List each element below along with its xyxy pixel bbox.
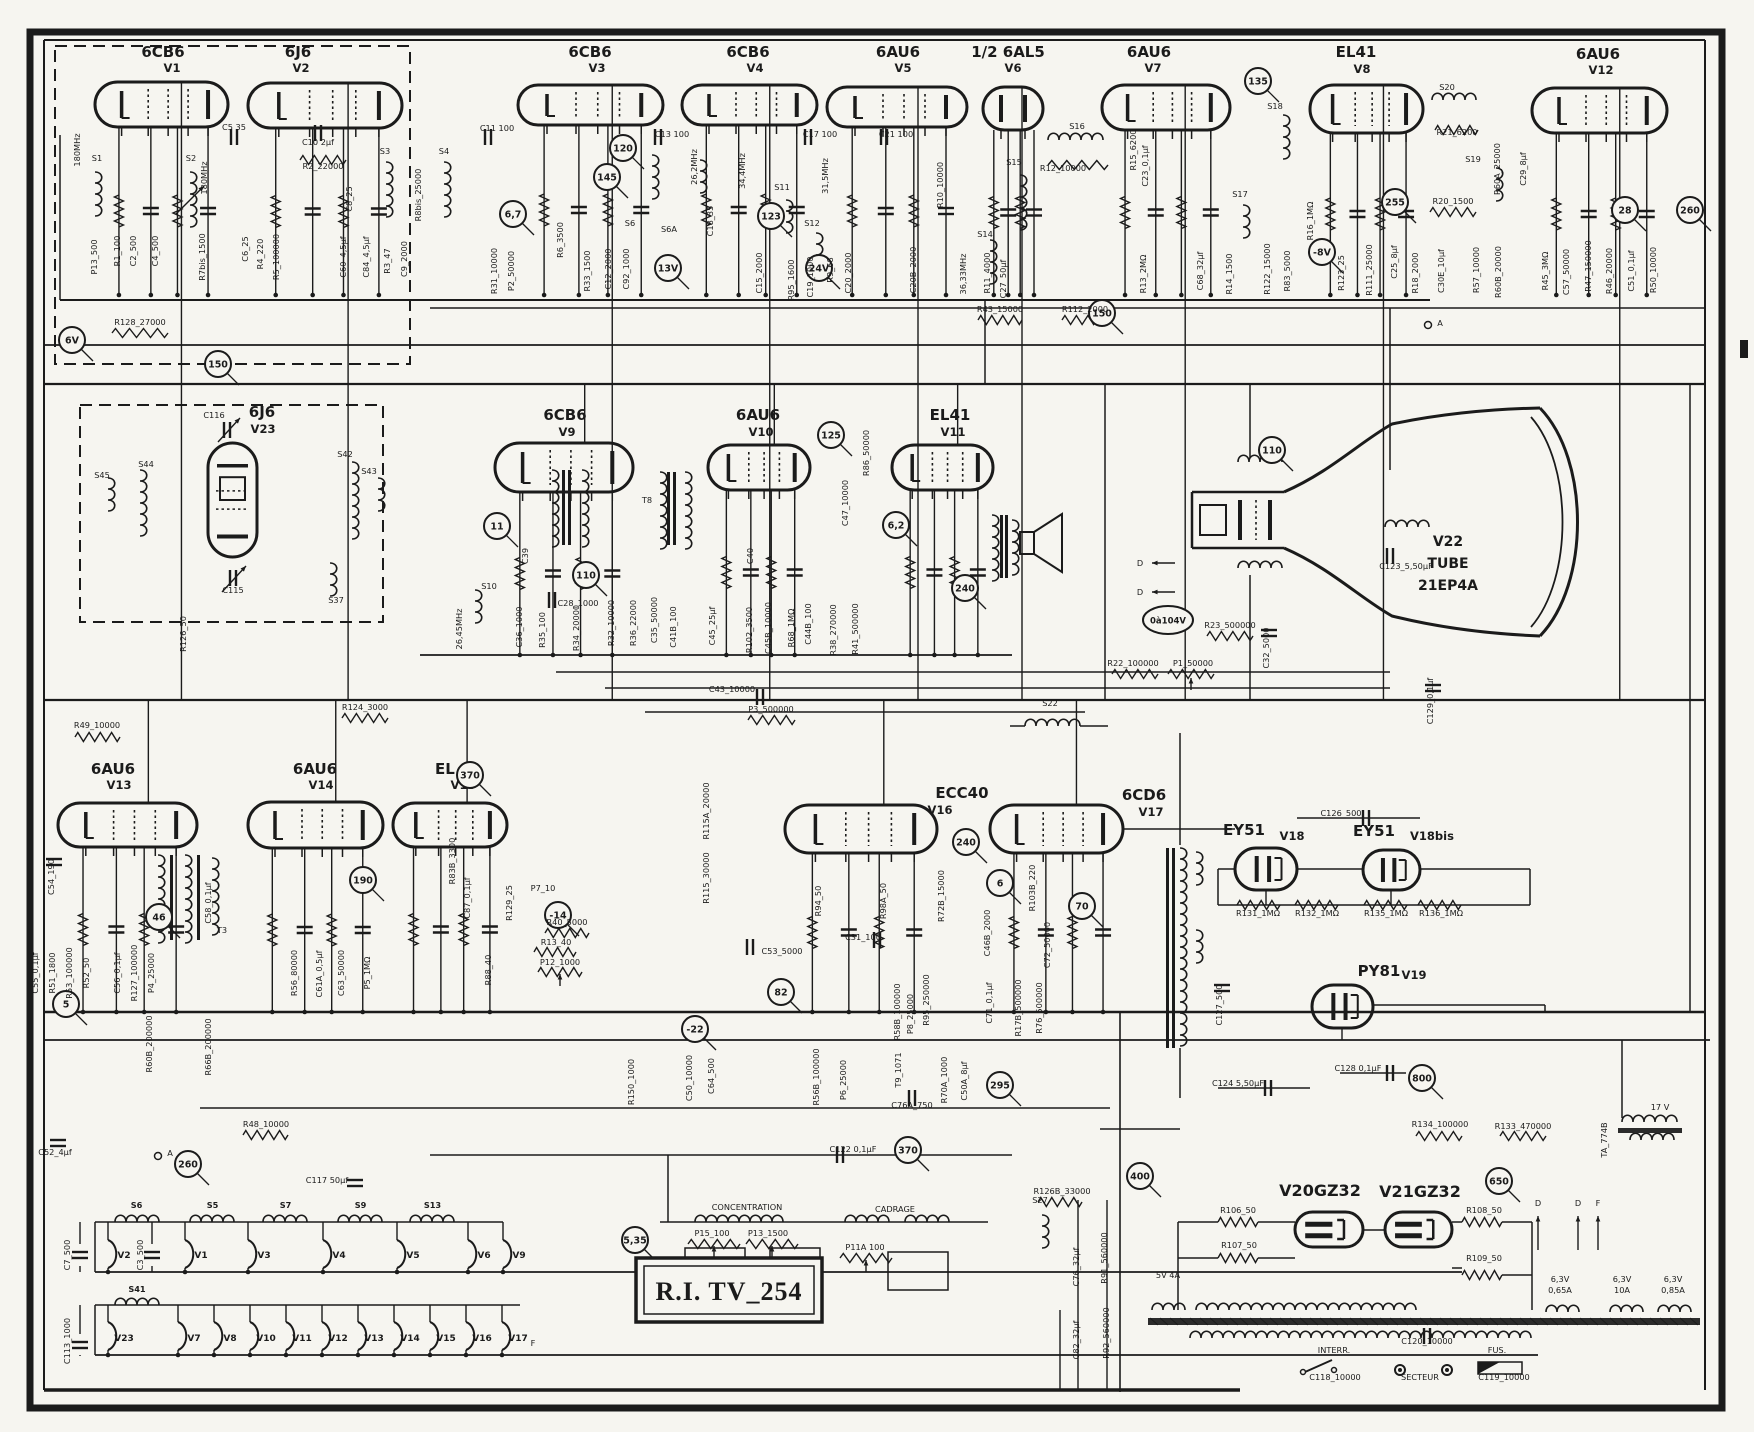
component-label: FUS. — [1488, 1345, 1507, 1355]
component-label: V4 — [332, 1251, 345, 1261]
component-label: C27_50µf — [998, 259, 1008, 299]
component-label: 150 — [208, 360, 228, 371]
component-label: R41_500000 — [850, 603, 860, 654]
component-label: 370 — [898, 1146, 918, 1157]
component-label: R126_50 — [178, 616, 188, 652]
component-label: R122_15000 — [1262, 243, 1272, 294]
tube-V19 — [1312, 985, 1373, 1028]
component-label: R103B_220 — [1027, 865, 1037, 912]
component-label: C18_35 — [705, 206, 715, 237]
component-label: S37 — [328, 595, 344, 605]
component-label: 6J6 — [249, 403, 275, 421]
component-label: R92_560000 — [1101, 1307, 1111, 1358]
component-label: F — [531, 1338, 536, 1348]
component-label: 11 — [490, 522, 503, 533]
component-label: R43_15000 — [977, 304, 1023, 314]
component-label: V4 — [747, 61, 764, 75]
test-point-value — [987, 870, 1021, 904]
component-label: 26,2MHz — [689, 149, 699, 185]
component-label: 6AU6 — [1576, 45, 1620, 63]
component-label: R98A_50 — [878, 883, 888, 919]
component-label: 6CB6 — [141, 43, 184, 61]
component-label: 6V — [65, 336, 80, 347]
component-label: C5 35 — [222, 122, 246, 132]
component-label: R5_100000 — [271, 234, 281, 280]
component-label: V5 — [895, 61, 912, 75]
component-label: S2 — [186, 153, 196, 163]
component-label: C118_10000 — [1309, 1372, 1360, 1382]
component-label: 400 — [1130, 1172, 1150, 1183]
component-label: 13V — [658, 264, 679, 275]
component-label: V13 — [107, 778, 132, 792]
schematic-canvas: 6CB6V16J6V26CB6V36CB6V46AU6V51/2 6AL5V66… — [0, 0, 1754, 1432]
component-label: R16_1MΩ — [1305, 202, 1315, 241]
component-label: R2_22000 — [302, 161, 343, 171]
component-label: C92_1000 — [621, 248, 631, 289]
component-label: 6CB6 — [726, 43, 769, 61]
component-label: T8 — [641, 495, 652, 505]
component-label: R8bis_25000 — [413, 169, 423, 222]
component-label: C51_0,1µf — [1626, 249, 1636, 291]
component-label: V13 — [364, 1334, 384, 1344]
component-label: V5 — [406, 1251, 419, 1261]
component-label: 145 — [597, 173, 617, 184]
component-label: V19 — [1402, 968, 1427, 982]
component-label: S9 — [355, 1200, 367, 1210]
component-label: C13 100 — [655, 129, 689, 139]
component-label: C76A_750 — [891, 1100, 932, 1110]
component-label: R53_100000 — [64, 947, 74, 998]
component-label: C115 — [222, 585, 243, 595]
component-label: C8_25 — [344, 186, 354, 211]
component-label: ECC40 — [935, 784, 988, 802]
component-label: 110 — [576, 571, 596, 582]
component-label: V23 — [251, 422, 276, 436]
component-label: EY51 — [1223, 821, 1265, 839]
component-label: C116 — [203, 410, 224, 420]
component-label: R129_25 — [504, 885, 514, 921]
component-label: 10A — [1614, 1285, 1630, 1295]
component-label: S15 — [1006, 157, 1022, 167]
component-label: V20GZ32 — [1279, 1181, 1361, 1200]
component-label: S20 — [1439, 82, 1455, 92]
component-label: P3_500000 — [748, 704, 794, 714]
component-label: R150_1000 — [626, 1059, 636, 1105]
component-label: R49_10000 — [74, 720, 120, 730]
component-label: 6AU6 — [293, 760, 337, 778]
component-label: R66B_200000 — [203, 1018, 213, 1075]
component-label: C47_10000 — [840, 480, 850, 526]
component-label: C55_0,1µf — [30, 951, 40, 993]
component-label: C122 0,1µF — [830, 1144, 877, 1154]
component-label: S43 — [361, 466, 377, 476]
component-label: 180MHz — [199, 161, 209, 194]
component-label: P11A 100 — [845, 1242, 884, 1252]
component-label: V7 — [1145, 61, 1162, 75]
component-label: S44 — [138, 459, 154, 469]
component-label: EL41 — [930, 406, 971, 424]
component-label: C35_50000 — [649, 597, 659, 643]
component-label: 260 — [178, 1160, 198, 1171]
component-label: C124 5,50µF — [1212, 1078, 1264, 1088]
component-label: 26,45MHz — [454, 609, 464, 650]
component-label: C25_8µf — [1389, 244, 1399, 279]
component-label: C45B_10000 — [763, 602, 773, 654]
component-label: C12_2000 — [603, 248, 613, 289]
component-label: C39 — [520, 548, 530, 564]
component-label: R17B_500000 — [1013, 979, 1023, 1036]
component-label: V17 — [508, 1334, 528, 1344]
component-label: S11 — [774, 182, 790, 192]
component-label: C53_5000 — [761, 946, 802, 956]
component-label: C119_10000 — [1478, 1372, 1529, 1382]
component-label: P6_25000 — [838, 1060, 848, 1100]
component-label: V12 — [328, 1334, 348, 1344]
component-label: 255 — [1385, 198, 1405, 209]
component-label: 6,3V — [1551, 1274, 1570, 1284]
component-label: P12_1000 — [540, 957, 580, 967]
component-label: R10_10000 — [935, 162, 945, 208]
component-label: R7bis_1500 — [197, 233, 207, 281]
component-label: C3_500 — [135, 1240, 145, 1271]
component-label: R115A_20000 — [701, 782, 711, 839]
component-label: 28 — [1618, 206, 1632, 217]
component-label: R102_3500 — [744, 607, 754, 653]
component-label: V6 — [477, 1251, 490, 1261]
component-label: R127_100000 — [129, 945, 139, 1002]
component-label: C41B_100 — [668, 606, 678, 647]
component-label: C123_5,50µF — [1379, 561, 1433, 571]
component-label: P5_1MΩ — [362, 957, 372, 990]
component-label: C60_4,5µf — [338, 235, 348, 277]
component-label: R91_560000 — [1099, 1232, 1109, 1283]
component-label: R135_1MΩ — [1364, 908, 1408, 918]
component-label: V11 — [292, 1334, 312, 1344]
component-label: R60B_200000 — [144, 1015, 154, 1072]
component-label: C9_2000 — [399, 241, 409, 277]
component-label: R50_10000 — [1648, 247, 1658, 293]
component-label: V3 — [589, 61, 606, 75]
component-label: C50A_8µf — [959, 1060, 969, 1100]
component-label: 6CB6 — [543, 406, 586, 424]
component-label: 6AU6 — [1127, 43, 1171, 61]
component-label: R136_1MΩ — [1419, 908, 1463, 918]
component-label: V21GZ32 — [1379, 1182, 1461, 1201]
component-label: 120 — [613, 144, 633, 155]
component-label: V2 — [293, 61, 310, 75]
component-label: T9_1071 — [893, 1052, 903, 1088]
component-label: 17 V — [1651, 1102, 1670, 1112]
component-label: R36_22000 — [628, 600, 638, 646]
component-label: C2_500 — [128, 236, 138, 267]
component-label: C32_5000 — [1261, 627, 1271, 668]
component-label: C68_32µf — [1195, 251, 1205, 291]
component-label: 70 — [1075, 902, 1089, 913]
component-label: 123 — [761, 212, 781, 223]
component-label: R70A_1000 — [939, 1057, 949, 1104]
component-label: C56_0,1µf — [112, 951, 122, 993]
component-label: V14 — [309, 778, 334, 792]
component-label: -22 — [686, 1025, 703, 1036]
component-label: S17 — [1232, 189, 1248, 199]
component-label: EL41 — [1336, 43, 1377, 61]
component-label: C128 0,1µF — [1335, 1063, 1382, 1073]
component-label: P15_100 — [694, 1228, 729, 1238]
component-label: P7_10 — [531, 883, 556, 893]
component-label: 36,33MHz — [958, 254, 968, 295]
component-label: C43_10000 — [709, 684, 755, 694]
component-label: P2_50000 — [506, 251, 516, 291]
component-label: 5,35 — [623, 1236, 646, 1247]
component-label: C72_50000 — [1042, 922, 1052, 968]
component-label: C129_0,1µf — [1425, 677, 1435, 725]
tube-V18bis — [1363, 850, 1420, 890]
tube-V23 — [208, 443, 257, 557]
component-label: 190 — [353, 876, 373, 887]
component-label: C40 — [745, 548, 755, 564]
component-label: 6CD6 — [1122, 786, 1166, 804]
component-label: 21EP4A — [1418, 578, 1478, 594]
component-label: C52_4µf — [38, 1147, 73, 1157]
component-label: -8V — [1313, 248, 1332, 259]
component-label: S45 — [94, 470, 110, 480]
component-label: R60A_25000 — [1492, 143, 1502, 195]
component-label: R47_150000 — [1583, 240, 1593, 291]
component-label: R14_1500 — [1224, 253, 1234, 294]
component-label: R123_25 — [1336, 255, 1346, 291]
component-label: V17 — [1139, 805, 1164, 819]
component-label: 5V 4A — [1156, 1270, 1181, 1280]
component-label: C127_500 — [1214, 984, 1224, 1025]
component-label: R18_2000 — [1410, 252, 1420, 293]
component-label: C120_10000 — [1401, 1336, 1452, 1346]
component-label: 0,65A — [1548, 1285, 1572, 1295]
component-label: S19 — [1465, 154, 1481, 164]
component-label: SECTEUR — [1401, 1372, 1439, 1382]
component-label: 31,5MHz — [820, 158, 830, 194]
component-label: 6AU6 — [91, 760, 135, 778]
component-label: 240 — [955, 584, 975, 595]
component-label: A — [1437, 318, 1443, 328]
component-label: R107_50 — [1221, 1240, 1257, 1250]
component-label: 6AU6 — [736, 406, 780, 424]
component-label: R94_50 — [813, 886, 823, 917]
component-label: R88_40 — [483, 955, 493, 986]
component-label: R22_100000 — [1107, 658, 1158, 668]
component-label: R56B_100000 — [811, 1048, 821, 1105]
component-label: C4_500 — [150, 236, 160, 267]
component-label: R11_4000 — [982, 252, 992, 293]
tube-V21 — [1385, 1212, 1452, 1247]
component-label: S22 — [1042, 698, 1058, 708]
component-label: V8 — [223, 1334, 236, 1344]
component-label: V9 — [559, 425, 576, 439]
component-label: S6 — [625, 218, 635, 228]
component-label: C17 100 — [803, 129, 837, 139]
component-label: C84_4,5µf — [361, 235, 371, 277]
component-label: C20_2000 — [843, 252, 853, 293]
component-label: R34_20000 — [571, 605, 581, 651]
component-label: V22 — [1433, 534, 1463, 550]
component-label: 6CB6 — [568, 43, 611, 61]
component-label: R83_5000 — [1282, 250, 1292, 291]
component-label: S1 — [92, 153, 102, 163]
component-label: INTERR. — [1318, 1345, 1350, 1355]
component-label: R33_1500 — [582, 250, 592, 291]
component-label: 295 — [990, 1081, 1010, 1092]
component-label: C44B_100 — [803, 603, 813, 644]
component-label: C61A_0,5µf — [314, 949, 324, 997]
component-label: PY81 — [1358, 962, 1401, 980]
component-label: 6J6 — [285, 43, 311, 61]
component-label: D — [1575, 1198, 1581, 1208]
component-label: S10 — [481, 581, 497, 591]
component-label: 240 — [956, 838, 976, 849]
component-label: 0,85A — [1661, 1285, 1685, 1295]
component-label: R6_3500 — [555, 222, 565, 258]
component-label: R133_470000 — [1495, 1121, 1552, 1131]
component-label: S7 — [280, 1200, 292, 1210]
component-label: V18 — [1280, 829, 1305, 843]
component-label: V1 — [164, 61, 181, 75]
component-label: S27 — [1032, 1195, 1048, 1205]
component-label: C19_1000 — [805, 256, 815, 297]
component-label: V2 — [117, 1251, 130, 1261]
component-label: R20_1500 — [1432, 196, 1473, 206]
component-label: R4_220 — [255, 239, 265, 270]
component-label: V10 — [256, 1334, 276, 1344]
component-label: CONCENTRATION — [712, 1202, 783, 1212]
component-label: R46_20000 — [1604, 248, 1614, 294]
component-label: P8_25000 — [905, 994, 915, 1034]
component-label: R68_1MΩ — [786, 609, 796, 648]
component-label: R95_1600 — [786, 259, 796, 300]
component-label: R108_50 — [1466, 1205, 1502, 1215]
component-label: R56_80000 — [289, 950, 299, 996]
component-label: R35_100 — [537, 612, 547, 648]
component-label: R12_10000 — [1040, 163, 1086, 173]
component-label: V16 — [472, 1334, 492, 1344]
component-label: R134_100000 — [1412, 1119, 1469, 1129]
component-label: 5 — [63, 1000, 70, 1011]
component-label: C11 100 — [480, 123, 514, 133]
component-label: V6 — [1005, 61, 1022, 75]
component-label: V16 — [928, 803, 953, 817]
component-label: C7_500 — [62, 1240, 72, 1271]
component-label: P13_500 — [89, 239, 99, 274]
component-label: R95_250000 — [921, 974, 931, 1025]
tube-V18 — [1235, 848, 1297, 890]
component-label: C82_32µf — [1071, 1320, 1081, 1360]
component-label: R48_10000 — [243, 1119, 289, 1129]
component-label: R124_3000 — [342, 702, 388, 712]
component-label: C50_10000 — [684, 1055, 694, 1101]
component-label: C31_100 — [845, 932, 881, 942]
component-label: S18 — [1267, 101, 1283, 111]
component-label: R109_50 — [1466, 1253, 1502, 1263]
component-label: V1 — [194, 1251, 207, 1261]
component-label: C6_25 — [240, 236, 250, 261]
component-label: C113_1000 — [62, 1318, 72, 1364]
component-label: V11 — [941, 425, 966, 439]
component-label: S3 — [380, 146, 390, 156]
component-label: R3_47 — [382, 248, 392, 273]
component-label: 6,3V — [1613, 1274, 1632, 1284]
component-label: R72B_15000 — [936, 870, 946, 922]
component-label: TUBE — [1427, 556, 1468, 572]
component-label: R13_2MΩ — [1138, 255, 1148, 294]
component-label: R9_68 — [825, 257, 835, 282]
component-label: R40_5000 — [546, 917, 587, 927]
component-label: S6 — [131, 1200, 143, 1210]
component-label: V14 — [400, 1334, 420, 1344]
component-label: R57_10000 — [1471, 247, 1481, 293]
component-label: 6AU6 — [876, 43, 920, 61]
component-label: C63_50000 — [336, 950, 346, 996]
component-label: R58B_100000 — [892, 983, 902, 1040]
component-label: C29_8µf — [1518, 151, 1528, 186]
component-label: V15 — [436, 1334, 456, 1344]
component-label: C117 50µf — [306, 1175, 350, 1185]
component-label: 135 — [1248, 77, 1268, 88]
component-label: R60B_20000 — [1493, 246, 1503, 298]
component-label: C15_2000 — [754, 252, 764, 293]
component-label: V8 — [1354, 62, 1371, 76]
component-label: 34,4MHz — [737, 153, 747, 189]
component-label: C36_1000 — [514, 606, 524, 647]
component-label: C58_0,1µf — [203, 881, 213, 923]
component-label: 125 — [821, 431, 841, 442]
component-label: C87_0,1µf — [462, 876, 472, 918]
component-label: R52_50 — [81, 958, 91, 989]
component-label: C76_32µf — [1071, 1247, 1081, 1287]
component-label: C20B_2000 — [908, 247, 918, 294]
component-label: C57_50000 — [1561, 249, 1571, 295]
component-label: 110 — [1262, 446, 1282, 457]
component-label: V7 — [187, 1334, 200, 1344]
component-label: T3 — [216, 925, 227, 935]
component-label: R38_270000 — [828, 604, 838, 655]
component-label: R115_30000 — [701, 852, 711, 903]
component-label: C71_0,1µf — [984, 981, 994, 1023]
component-label: R45_3MΩ — [1540, 252, 1550, 291]
component-label: R21_6200 — [1436, 127, 1477, 137]
component-label: R1_100 — [112, 236, 122, 267]
component-label: V9 — [512, 1251, 525, 1261]
component-label: R13_40 — [541, 937, 572, 947]
component-label: 650 — [1489, 1177, 1509, 1188]
component-label: V18bis — [1410, 829, 1454, 843]
component-label: C64_500 — [706, 1058, 716, 1094]
component-label: S6A — [661, 224, 677, 234]
component-label: S14 — [977, 229, 993, 239]
component-label: S16 — [1069, 121, 1085, 131]
component-label: D — [1137, 587, 1143, 597]
component-label: 370 — [460, 771, 480, 782]
component-label: 0à104V — [1150, 617, 1186, 627]
component-label: C23_0,1µf — [1140, 144, 1150, 186]
component-label: R32_10000 — [606, 600, 616, 646]
component-label: 1/2 6AL5 — [971, 43, 1045, 61]
component-label: R128_27000 — [114, 317, 165, 327]
tube-V20 — [1295, 1212, 1363, 1247]
component-label: A — [167, 1148, 173, 1158]
component-label: C30E_10µf — [1436, 248, 1446, 293]
component-label: C45_25µf — [707, 606, 717, 646]
component-label: 6,7 — [505, 210, 522, 221]
component-label: R83B_3300 — [447, 838, 457, 885]
component-label: CADRAGE — [875, 1204, 915, 1214]
